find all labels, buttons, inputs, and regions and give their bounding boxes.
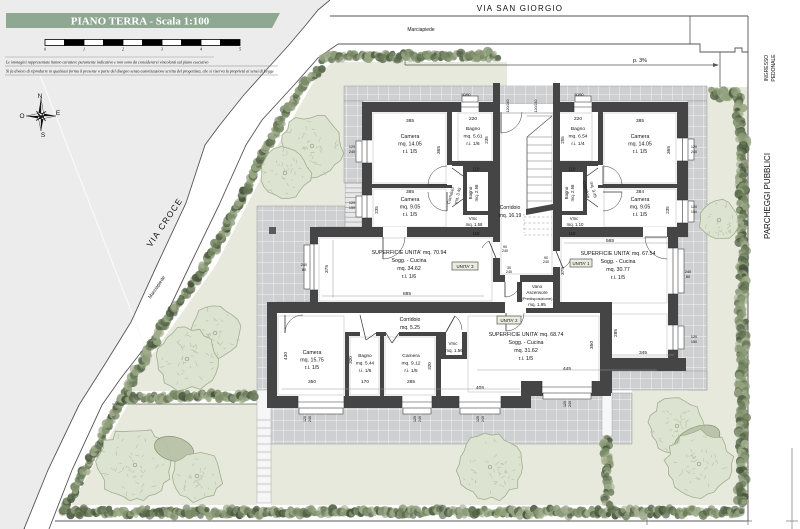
- svg-text:120: 120: [691, 205, 697, 209]
- svg-text:255: 255: [560, 136, 565, 144]
- svg-text:N: N: [38, 93, 43, 100]
- svg-text:mq. 5.61: mq. 5.61: [463, 134, 482, 140]
- svg-text:110: 110: [473, 167, 480, 172]
- svg-text:240: 240: [301, 263, 307, 267]
- svg-text:S: S: [41, 132, 46, 139]
- svg-text:mq. 9.12: mq. 9.12: [401, 361, 420, 367]
- svg-text:235: 235: [374, 206, 379, 214]
- svg-text:mq. 5.44: mq. 5.44: [356, 361, 375, 366]
- svg-text:120: 120: [413, 416, 417, 422]
- svg-text:240: 240: [543, 260, 549, 264]
- svg-text:mq. 5.25: mq. 5.25: [400, 325, 420, 331]
- svg-text:r.i. 1/6: r.i. 1/6: [466, 141, 480, 147]
- svg-text:mq. 34.62: mq. 34.62: [397, 266, 421, 272]
- svg-text:Corridoio: Corridoio: [400, 317, 421, 323]
- svg-text:PEDONALE: PEDONALE: [771, 54, 777, 82]
- svg-text:r.i. 1/5: r.i. 1/5: [519, 356, 533, 362]
- svg-text:mq. 1.56: mq. 1.56: [445, 348, 463, 353]
- svg-text:r.i. 1/6: r.i. 1/6: [402, 274, 416, 280]
- svg-text:Bagno: Bagno: [564, 186, 569, 199]
- svg-text:60/60: 60/60: [462, 93, 471, 97]
- svg-text:385: 385: [406, 118, 414, 124]
- svg-text:mq. 1.95: mq. 1.95: [528, 302, 546, 307]
- svg-text:5: 5: [239, 47, 241, 52]
- svg-text:PARCHEGGI PUBBLICI: PARCHEGGI PUBBLICI: [763, 153, 772, 239]
- svg-text:SUPERFICIE UNITA' mq. 67.54: SUPERFICIE UNITA' mq. 67.54: [581, 251, 656, 257]
- svg-text:r.i. 1/5: r.i. 1/5: [633, 212, 647, 218]
- svg-text:240: 240: [691, 150, 697, 154]
- svg-text:375: 375: [560, 267, 566, 275]
- svg-text:235: 235: [484, 136, 489, 144]
- svg-text:Camera: Camera: [401, 197, 420, 203]
- svg-text:385: 385: [406, 189, 414, 195]
- svg-text:285: 285: [407, 379, 415, 385]
- svg-text:(Predisposizione): (Predisposizione): [522, 296, 554, 301]
- svg-text:445: 445: [563, 366, 571, 372]
- svg-text:r.i. 1/5: r.i. 1/5: [633, 149, 647, 155]
- svg-text:240: 240: [308, 416, 312, 422]
- svg-text:mq. 9.05: mq. 9.05: [400, 205, 421, 211]
- svg-text:240: 240: [481, 416, 485, 422]
- svg-text:mq. 14.05: mq. 14.05: [628, 142, 652, 148]
- svg-text:240: 240: [418, 416, 422, 422]
- svg-text:110: 110: [569, 231, 576, 236]
- svg-text:120/240: 120/240: [506, 100, 510, 113]
- svg-text:UNITA' 2: UNITA' 2: [501, 318, 519, 323]
- svg-text:Vmc: Vmc: [449, 341, 459, 346]
- svg-text:Camera: Camera: [631, 134, 650, 140]
- svg-text:mq. 6.54: mq. 6.54: [568, 134, 587, 140]
- svg-text:O: O: [19, 113, 24, 120]
- svg-text:SUPERFICIE UNITA' mq. 70.94: SUPERFICIE UNITA' mq. 70.94: [372, 250, 447, 256]
- svg-text:110: 110: [473, 231, 480, 236]
- svg-text:3: 3: [161, 47, 163, 52]
- svg-text:430: 430: [283, 352, 289, 360]
- svg-text:Camera: Camera: [303, 350, 322, 356]
- svg-text:mq. 16.19: mq. 16.19: [499, 213, 522, 219]
- svg-text:240: 240: [349, 150, 355, 154]
- svg-text:240: 240: [568, 401, 572, 407]
- svg-text:Sogg. - Cucina: Sogg. - Cucina: [391, 258, 426, 264]
- svg-text:r.i. 1/5: r.i. 1/5: [404, 368, 418, 374]
- svg-text:r.i. 1/5: r.i. 1/5: [305, 365, 319, 371]
- svg-text:220: 220: [469, 116, 477, 122]
- svg-text:150: 150: [691, 340, 697, 344]
- svg-text:Camera: Camera: [402, 353, 420, 359]
- svg-text:Vmc: Vmc: [570, 216, 579, 221]
- svg-text:mq. 15.75: mq. 15.75: [300, 358, 324, 364]
- svg-text:235: 235: [665, 206, 670, 214]
- svg-text:Bagno: Bagno: [468, 186, 473, 199]
- svg-text:120: 120: [563, 401, 567, 407]
- svg-text:Vmc: Vmc: [469, 216, 478, 221]
- svg-text:0: 0: [44, 47, 46, 52]
- svg-text:80: 80: [686, 275, 690, 279]
- svg-text:240: 240: [506, 270, 512, 274]
- svg-text:150: 150: [349, 206, 355, 210]
- svg-text:mq. 2.58: mq. 2.58: [474, 184, 479, 201]
- svg-text:120: 120: [349, 145, 355, 149]
- svg-text:E: E: [56, 110, 61, 117]
- svg-text:385: 385: [636, 118, 644, 124]
- svg-text:r.i. 1/4: r.i. 1/4: [571, 141, 585, 147]
- svg-text:Ascensore: Ascensore: [526, 290, 548, 295]
- svg-text:110: 110: [569, 167, 576, 172]
- svg-text:VIA SAN GIORGIO: VIA SAN GIORGIO: [477, 4, 563, 13]
- svg-text:220: 220: [574, 116, 582, 122]
- svg-text:Camera: Camera: [631, 197, 650, 203]
- svg-text:Bagno: Bagno: [466, 126, 480, 132]
- svg-text:2: 2: [122, 47, 124, 52]
- svg-text:350: 350: [308, 379, 316, 385]
- svg-text:150: 150: [691, 210, 697, 214]
- svg-text:4: 4: [200, 47, 202, 52]
- svg-text:120: 120: [303, 416, 307, 422]
- svg-text:384: 384: [636, 189, 644, 195]
- svg-text:320: 320: [427, 362, 432, 370]
- svg-text:mq. 1.10: mq. 1.10: [567, 222, 584, 227]
- svg-text:UNITA' 1: UNITA' 1: [573, 261, 591, 266]
- svg-text:Bagno: Bagno: [571, 126, 585, 132]
- svg-text:mq. 9.05: mq. 9.05: [630, 205, 651, 211]
- svg-text:r.i. 1/5: r.i. 1/5: [403, 149, 417, 155]
- svg-text:Bagno: Bagno: [358, 353, 372, 358]
- svg-text:mq. 14.05: mq. 14.05: [398, 142, 422, 148]
- svg-text:240: 240: [502, 249, 508, 253]
- svg-text:170: 170: [361, 379, 369, 385]
- svg-text:UNITA' 3: UNITA' 3: [457, 264, 475, 269]
- svg-text:120: 120: [476, 416, 480, 422]
- svg-text:240: 240: [685, 270, 691, 274]
- svg-text:365: 365: [666, 146, 672, 154]
- svg-text:r.i. 1/5: r.i. 1/5: [403, 212, 417, 218]
- svg-text:120: 120: [691, 145, 697, 149]
- svg-text:Vano: Vano: [532, 284, 543, 289]
- svg-text:PIANO TERRA - Scala 1:100: PIANO TERRA - Scala 1:100: [71, 16, 210, 28]
- svg-text:mq. 31.62: mq. 31.62: [514, 348, 538, 354]
- svg-text:Le immagini rappresentate hann: Le immagini rappresentate hanno caratter…: [5, 60, 208, 65]
- svg-text:60/60: 60/60: [575, 93, 584, 97]
- svg-text:80: 80: [302, 268, 306, 272]
- svg-text:Camera: Camera: [401, 134, 420, 140]
- svg-text:Marciapiede: Marciapiede: [407, 27, 434, 33]
- svg-text:Corridoio: Corridoio: [500, 205, 521, 211]
- svg-text:365: 365: [436, 146, 442, 154]
- svg-text:320: 320: [348, 356, 353, 364]
- svg-text:120/240: 120/240: [534, 100, 538, 113]
- svg-text:r.i. 1/5: r.i. 1/5: [611, 275, 625, 281]
- svg-text:SUPERFICIE UNITA' mq. 68.74: SUPERFICIE UNITA' mq. 68.74: [489, 332, 564, 338]
- svg-text:Sogg. - Cucina: Sogg. - Cucina: [600, 259, 635, 265]
- svg-text:r.i. 1/6: r.i. 1/6: [359, 368, 372, 373]
- svg-text:375: 375: [324, 265, 330, 273]
- svg-text:405: 405: [476, 385, 484, 391]
- svg-text:120: 120: [691, 335, 697, 339]
- svg-text:p. 3%: p. 3%: [633, 58, 647, 64]
- svg-text:mq. 2.58: mq. 2.58: [570, 184, 575, 201]
- svg-text:mq. 30.77: mq. 30.77: [606, 267, 630, 273]
- svg-text:mq. 1.58: mq. 1.58: [466, 222, 483, 227]
- svg-text:INGRESSO: INGRESSO: [764, 55, 770, 82]
- svg-text:1: 1: [83, 47, 85, 52]
- svg-text:120: 120: [349, 201, 355, 205]
- svg-text:350: 350: [589, 341, 595, 349]
- svg-text:285: 285: [613, 329, 619, 337]
- svg-text:Sogg. - Cucina: Sogg. - Cucina: [508, 340, 543, 346]
